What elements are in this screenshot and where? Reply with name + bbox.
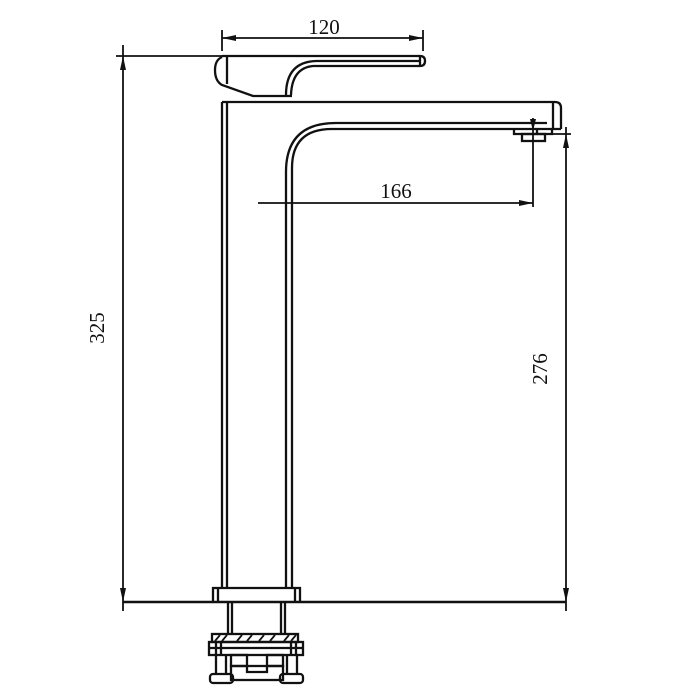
arrowhead-down-325 [120,588,126,602]
dimension-label-outlet-height: 276 [528,353,552,385]
left-stud-foot [210,674,233,683]
left-mounting-stud [216,655,226,674]
spout-underside-outer [292,129,561,588]
dimension-overall-height: 325 [85,45,222,611]
arrowhead-down-276 [563,588,569,602]
arrowhead-left-120 [222,35,236,41]
arrowhead-right-166 [519,200,533,206]
faucet-outline [209,56,561,683]
spout-underside-inner [286,123,547,588]
spout-top-edge [222,102,561,129]
dimension-spout-reach: 166 [258,118,536,207]
arrowhead-up-276 [563,134,569,148]
body-and-spout [222,102,561,588]
hose-block-right-tab [267,655,283,666]
base-flange [213,588,300,602]
hose-block-left-tab [231,655,247,666]
base-flange-inner-lines [218,588,295,602]
dimension-label-overall-height: 325 [85,312,109,344]
right-mounting-stud [287,655,297,674]
dimension-outlet-height: 276 [528,127,571,611]
handle-lever [215,56,425,96]
mounting-nut-facets [209,642,303,655]
arrowhead-up-325 [120,56,126,70]
dimension-annotations: 120 166 325 276 [85,15,571,611]
threaded-shank [228,602,285,634]
dimension-label-handle-length: 120 [308,15,340,39]
dimension-handle-length: 120 [222,15,423,51]
washer-hatching [215,635,296,641]
faucet-technical-drawing: 120 166 325 276 [0,0,700,700]
technical-drawing-page: 120 166 325 276 [0,0,700,700]
arrowhead-right-120 [409,35,423,41]
dimension-label-spout-reach: 166 [380,179,412,203]
